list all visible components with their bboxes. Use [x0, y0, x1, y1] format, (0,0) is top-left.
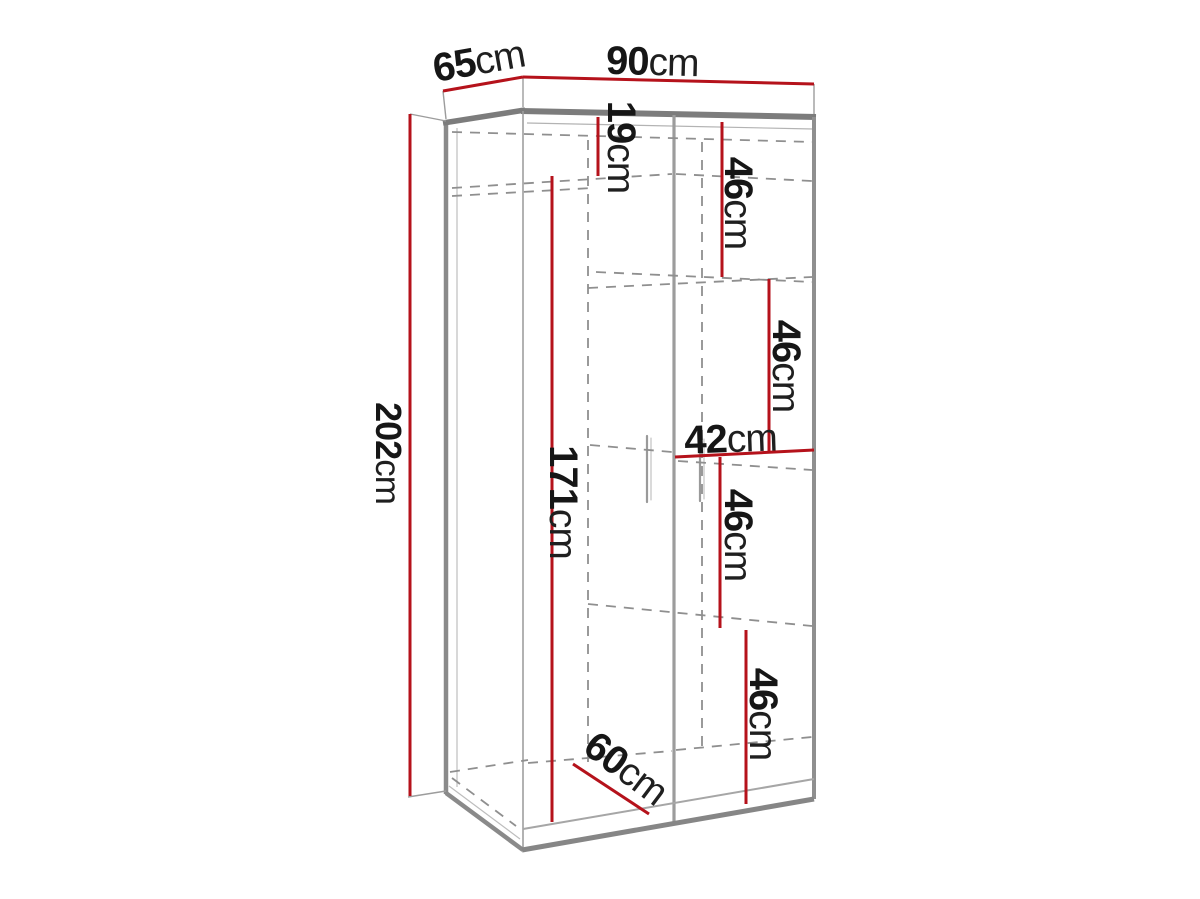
side-bottom-line — [449, 786, 520, 839]
diagram-svg: 65cm 90cm 202cm 19cm 46cm 46cm 42cm 46cm… — [0, 0, 1200, 899]
front-top-edge — [521, 111, 816, 117]
shelf2-back-dashed — [678, 461, 812, 470]
left-door-handle — [647, 436, 651, 502]
shelf1-back-dashed — [588, 277, 812, 288]
dim-label-shelf4-46: 46cm — [741, 668, 785, 761]
dim-label-shelf3-46: 46cm — [716, 489, 760, 582]
floor-dashed-side-a — [450, 760, 528, 772]
ceiling-dashed-left-2 — [452, 188, 592, 196]
shelf2-left-dashed — [590, 445, 672, 452]
wardrobe-dimension-diagram: 65cm 90cm 202cm 19cm 46cm 46cm 42cm 46cm… — [0, 0, 1200, 899]
dim-label-height-202: 202cm — [368, 402, 409, 504]
dim-label-top-19: 19cm — [599, 101, 643, 194]
front-bottom-edge — [522, 799, 814, 850]
dim-label-shelf2-46: 46cm — [764, 320, 808, 413]
ext-depth-left — [443, 91, 446, 119]
dim-label-width-42: 42cm — [684, 415, 778, 462]
side-top-edge — [443, 110, 525, 123]
dim-label-hanging-171: 171cm — [541, 445, 585, 559]
dim-label-depth-65: 65cm — [429, 32, 528, 91]
shelf1-front-dashed — [596, 272, 812, 282]
door-top-line — [527, 123, 813, 129]
ext-height-bottom — [408, 791, 446, 797]
shelf3-dashed — [588, 604, 812, 626]
dim-label-width-90: 90cm — [606, 39, 700, 85]
dim-label-shelf1-46: 46cm — [716, 157, 760, 250]
ext-height-top — [410, 114, 446, 121]
